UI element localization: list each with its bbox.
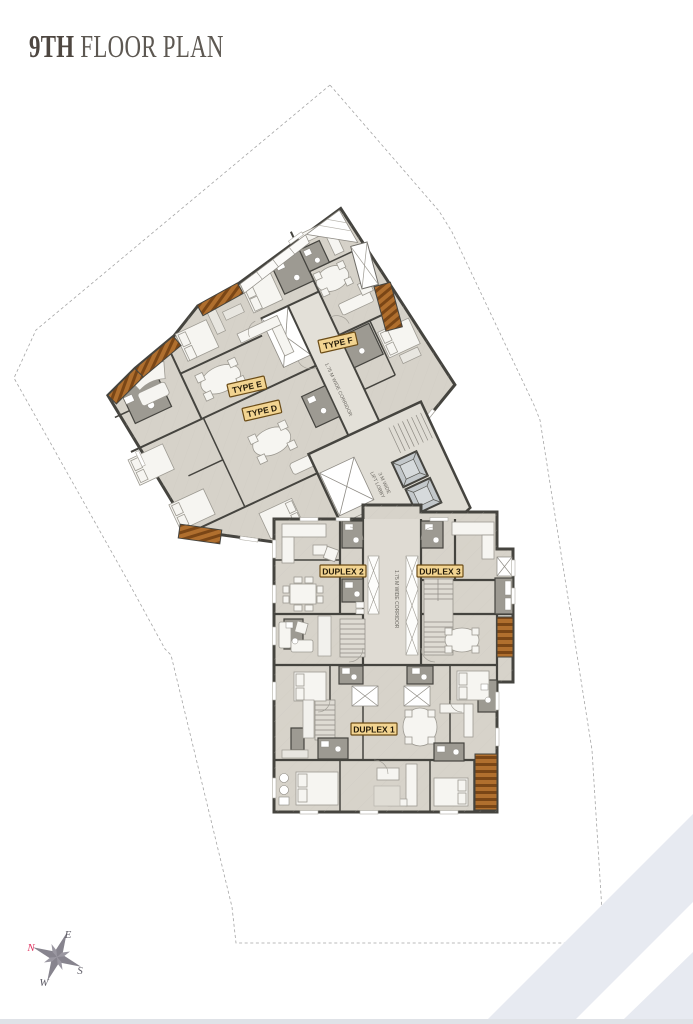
svg-text:N: N: [26, 942, 35, 954]
svg-text:E: E: [64, 929, 72, 941]
svg-text:S: S: [77, 965, 83, 977]
svg-text:DUPLEX 3: DUPLEX 3: [419, 567, 461, 577]
svg-text:W: W: [39, 977, 49, 989]
svg-text:DUPLEX 2: DUPLEX 2: [322, 567, 364, 577]
svg-text:1.75 M WIDE CORRIDOR: 1.75 M WIDE CORRIDOR: [393, 570, 399, 629]
svg-text:DUPLEX 1: DUPLEX 1: [353, 725, 395, 735]
